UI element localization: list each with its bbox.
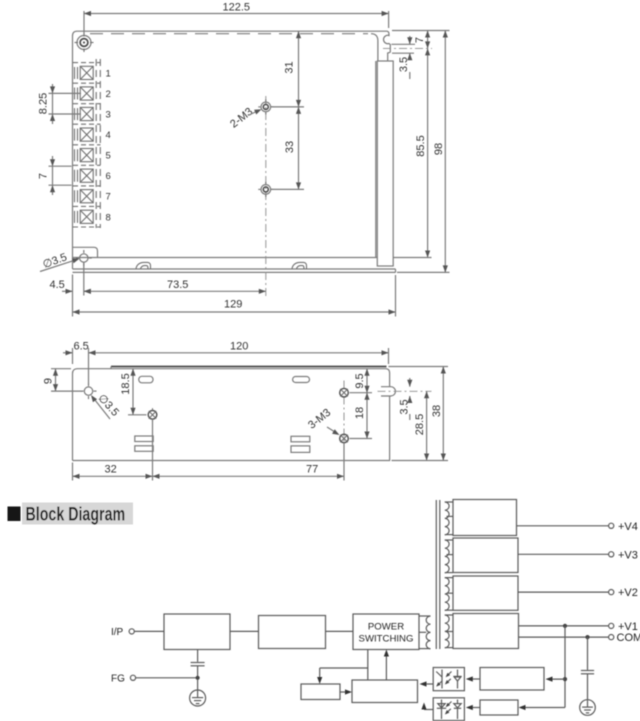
svg-text:31: 31 [284,61,296,73]
svg-text:98: 98 [433,143,445,155]
svg-text:1: 1 [106,68,111,79]
svg-text:9: 9 [43,378,55,384]
svg-text:38: 38 [431,405,443,417]
svg-text:77: 77 [306,464,318,476]
svg-text:I/P: I/P [111,627,124,638]
svg-text:32: 32 [105,464,117,476]
svg-text:2: 2 [106,89,111,100]
svg-text:+V2: +V2 [618,587,638,599]
svg-text:8.25: 8.25 [38,93,50,114]
svg-text:+V4: +V4 [618,521,638,533]
svg-text:18.5: 18.5 [120,373,132,394]
svg-text:129: 129 [224,299,242,311]
svg-text:3.5: 3.5 [398,57,410,72]
svg-text:SWITCHING: SWITCHING [359,634,414,645]
svg-text:4: 4 [106,130,111,141]
svg-text:3.5: 3.5 [399,399,411,414]
svg-text:7: 7 [414,37,426,43]
svg-text:Block Diagram: Block Diagram [26,503,126,525]
svg-text:6.5: 6.5 [74,341,89,353]
svg-text:+V3: +V3 [618,549,638,561]
svg-text:5: 5 [106,151,111,162]
svg-text:73.5: 73.5 [167,279,188,291]
svg-text:28.5: 28.5 [414,414,426,435]
svg-text:8: 8 [106,212,111,223]
svg-text:18: 18 [354,407,366,419]
svg-text:FG: FG [111,674,125,685]
svg-text:4.5: 4.5 [50,279,65,291]
svg-text:7: 7 [38,173,50,179]
svg-text:POWER: POWER [368,622,404,633]
svg-text:9.5: 9.5 [354,373,366,388]
svg-text:COM: COM [617,632,640,644]
svg-text:3: 3 [106,110,111,121]
svg-text:122.5: 122.5 [223,2,251,14]
svg-text:120: 120 [230,341,248,353]
svg-text:6: 6 [106,171,111,182]
svg-text:33: 33 [284,141,296,153]
svg-text:7: 7 [106,192,111,203]
svg-text:+V1: +V1 [618,621,638,633]
svg-text:85.5: 85.5 [415,135,427,156]
